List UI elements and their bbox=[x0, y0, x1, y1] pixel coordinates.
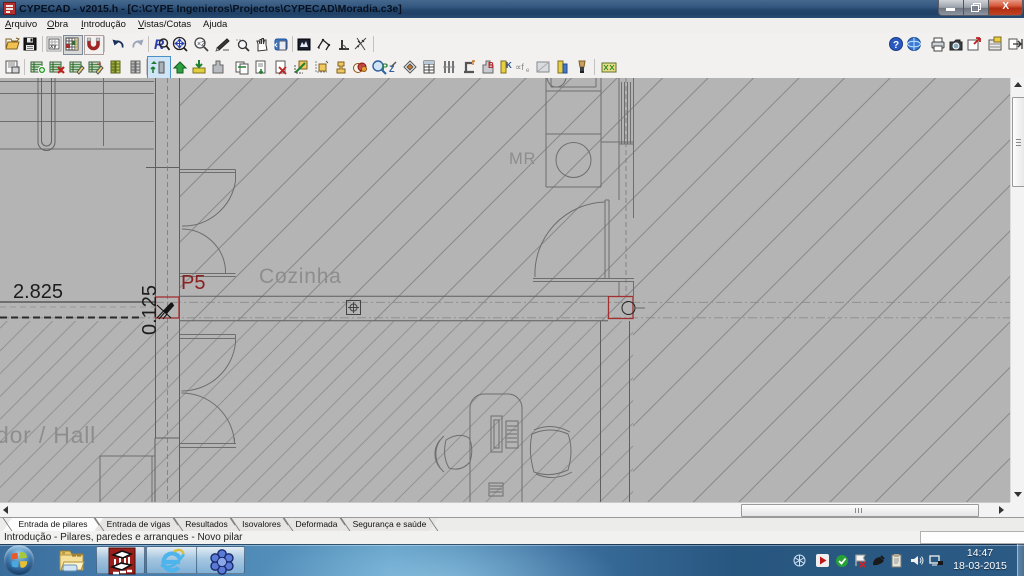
svg-text:B: B bbox=[488, 61, 494, 70]
svg-text:K: K bbox=[506, 61, 512, 70]
svg-text:0.125: 0.125 bbox=[139, 285, 161, 335]
svg-text:Cozinha: Cozinha bbox=[259, 265, 342, 288]
svg-text:MR: MR bbox=[509, 150, 536, 168]
svg-text:?: ? bbox=[893, 40, 899, 51]
svg-text:P5: P5 bbox=[181, 272, 205, 294]
svg-text:xy: xy bbox=[50, 43, 57, 50]
svg-text:2.825: 2.825 bbox=[13, 281, 63, 303]
svg-text:×2: ×2 bbox=[197, 41, 205, 48]
svg-text:∝f: ∝f bbox=[515, 62, 524, 72]
svg-text:P: P bbox=[382, 62, 388, 72]
svg-text:dor / Hall: dor / Hall bbox=[0, 422, 96, 448]
svg-text:e: e bbox=[526, 68, 530, 74]
